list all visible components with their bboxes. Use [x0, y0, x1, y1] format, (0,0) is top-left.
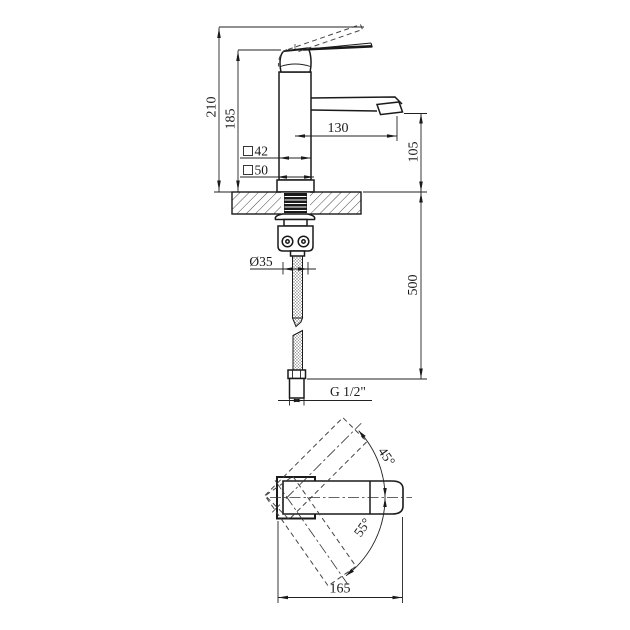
- handle-cap: [278, 48, 311, 72]
- dim-base-section: 50: [255, 163, 269, 178]
- drawing-canvas: 210 185 130 105 500: [0, 0, 630, 630]
- hose-break-bottom: [293, 331, 303, 371]
- dim-spout-reach: 130: [328, 121, 349, 136]
- dim-body-section: 42: [255, 144, 269, 159]
- dim-overall-length: 165: [330, 582, 351, 597]
- dim-mount-hole-diameter: Ø35: [249, 254, 272, 269]
- threaded-shank: [284, 193, 307, 213]
- dim-thread-size: G 1/2": [330, 384, 366, 399]
- hose-connector: [288, 370, 306, 398]
- mounting-nut: [275, 214, 314, 220]
- dim-total-height: 210: [205, 97, 220, 118]
- base-flange: [277, 180, 314, 192]
- thread-end: [290, 379, 305, 399]
- dim-body-height: 185: [224, 109, 239, 130]
- faucet-body: [279, 72, 311, 180]
- background: [0, 0, 630, 630]
- sink-deck: [232, 192, 361, 214]
- aerator: [377, 102, 403, 115]
- faucet-technical-drawing: 210 185 130 105 500: [0, 0, 630, 630]
- dim-spout-outlet-height: 105: [407, 142, 422, 163]
- dim-hose-length: 500: [406, 275, 421, 296]
